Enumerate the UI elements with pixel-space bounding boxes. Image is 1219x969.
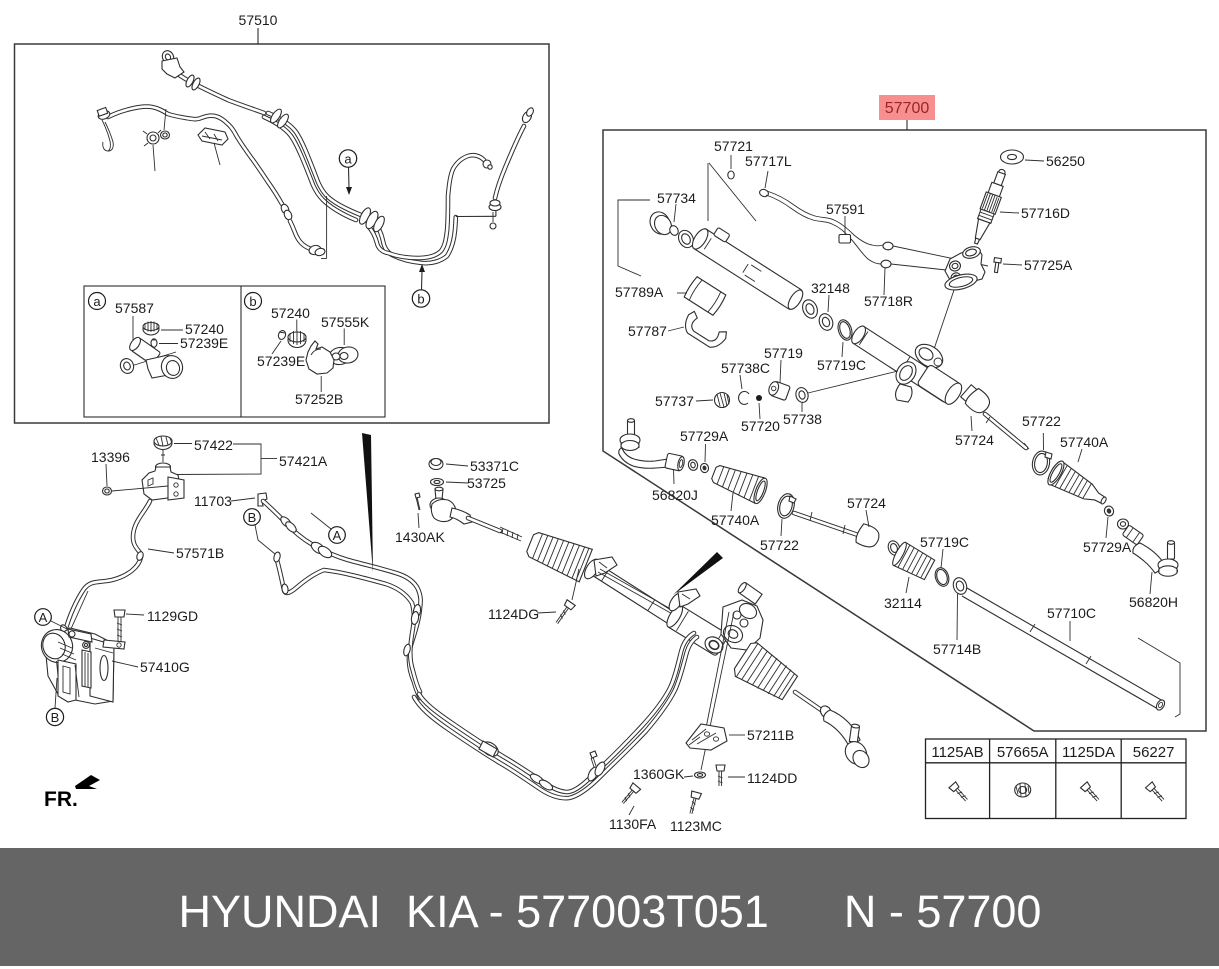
svg-text:53371C: 53371C: [470, 458, 519, 474]
svg-text:1124DG: 1124DG: [488, 606, 539, 622]
svg-text:32148: 32148: [811, 280, 850, 296]
svg-text:57700: 57700: [885, 100, 930, 117]
svg-text:57740A: 57740A: [1060, 434, 1109, 450]
svg-text:57211B: 57211B: [747, 727, 794, 743]
svg-text:57714B: 57714B: [933, 641, 981, 657]
svg-text:57724: 57724: [955, 432, 994, 448]
svg-text:A: A: [39, 610, 48, 625]
svg-text:57555K: 57555K: [321, 314, 370, 330]
svg-text:57571B: 57571B: [176, 545, 224, 561]
svg-text:57710C: 57710C: [1047, 605, 1096, 621]
svg-text:57719C: 57719C: [817, 357, 866, 373]
svg-text:57722: 57722: [760, 537, 799, 553]
svg-text:56820J: 56820J: [652, 487, 698, 503]
svg-text:b: b: [249, 294, 256, 309]
svg-text:57734: 57734: [657, 190, 696, 206]
svg-text:57729A: 57729A: [680, 428, 729, 444]
svg-text:1124DD: 1124DD: [747, 770, 797, 786]
svg-text:13396: 13396: [91, 449, 130, 465]
svg-text:1130FA: 1130FA: [609, 816, 657, 832]
svg-text:57240: 57240: [271, 305, 310, 321]
svg-text:57719: 57719: [764, 345, 803, 361]
svg-text:b: b: [417, 292, 424, 307]
svg-text:57718R: 57718R: [864, 293, 913, 309]
svg-text:57719C: 57719C: [920, 534, 969, 550]
svg-text:1123MC: 1123MC: [670, 818, 722, 834]
svg-text:11703: 11703: [194, 493, 232, 509]
svg-text:57510: 57510: [239, 12, 278, 28]
svg-text:1129GD: 1129GD: [147, 608, 198, 624]
svg-text:A: A: [333, 528, 342, 543]
svg-text:B: B: [248, 510, 257, 525]
svg-text:a: a: [344, 152, 352, 167]
svg-text:57410G: 57410G: [140, 659, 190, 675]
svg-text:57722: 57722: [1022, 413, 1061, 429]
svg-text:56227: 56227: [1133, 744, 1175, 761]
svg-text:57252B: 57252B: [295, 391, 343, 407]
svg-text:B: B: [51, 710, 60, 725]
svg-text:57421A: 57421A: [279, 453, 328, 469]
svg-text:1125DA: 1125DA: [1062, 744, 1115, 761]
svg-text:57239E: 57239E: [180, 335, 228, 351]
svg-text:HYUNDAI KIA - 577003T051: HYUNDAI KIA - 577003T051 N - 57700: [179, 886, 1042, 937]
svg-text:57717L: 57717L: [745, 153, 792, 169]
svg-text:57720: 57720: [741, 418, 780, 434]
svg-text:53725: 53725: [467, 475, 506, 491]
svg-text:57591: 57591: [826, 201, 865, 217]
svg-text:57587: 57587: [115, 300, 154, 316]
svg-text:57239E: 57239E: [257, 353, 305, 369]
svg-text:57716D: 57716D: [1021, 205, 1070, 221]
svg-text:57422: 57422: [194, 437, 233, 453]
svg-text:57737: 57737: [655, 393, 694, 409]
svg-text:56250: 56250: [1046, 153, 1085, 169]
svg-text:32114: 32114: [884, 595, 922, 611]
svg-text:57738: 57738: [783, 411, 822, 427]
svg-text:57721: 57721: [714, 138, 753, 154]
svg-text:57665A: 57665A: [997, 744, 1049, 761]
svg-text:1360GK: 1360GK: [633, 766, 685, 782]
svg-text:57789A: 57789A: [615, 284, 664, 300]
svg-text:57787: 57787: [628, 323, 667, 339]
svg-text:FR.: FR.: [44, 788, 78, 811]
svg-text:1430AK: 1430AK: [395, 529, 445, 545]
svg-text:57725A: 57725A: [1024, 257, 1073, 273]
svg-text:56820H: 56820H: [1129, 594, 1178, 610]
svg-text:a: a: [93, 294, 101, 309]
svg-text:57740A: 57740A: [711, 512, 760, 528]
svg-text:57729A: 57729A: [1083, 539, 1132, 555]
svg-text:57724: 57724: [847, 495, 886, 511]
svg-text:57738C: 57738C: [721, 360, 770, 376]
svg-text:1125AB: 1125AB: [931, 744, 983, 761]
